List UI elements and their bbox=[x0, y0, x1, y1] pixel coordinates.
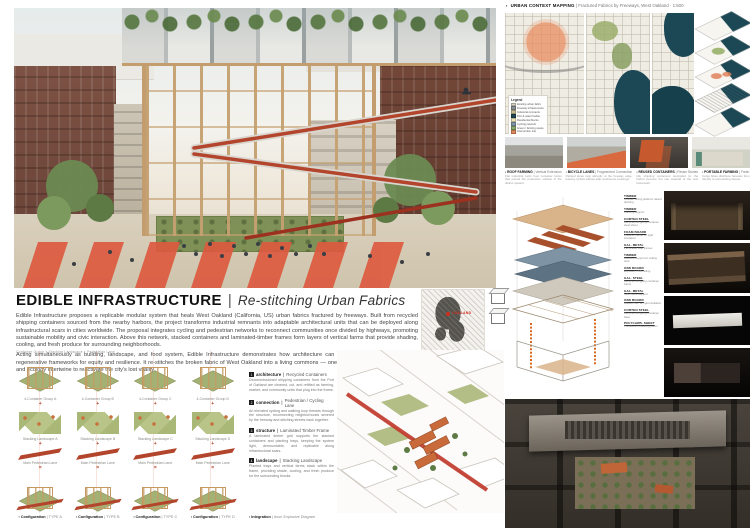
photo-bicycle-lanes bbox=[567, 137, 625, 168]
container-group-diagram bbox=[17, 356, 63, 396]
context-map-bay bbox=[652, 13, 694, 134]
configuration-labels: Configuration | TYPE A Configuration | T… bbox=[14, 515, 239, 519]
city-label: OAKLAND bbox=[452, 311, 471, 315]
site-photos-row bbox=[505, 137, 750, 168]
green-zone bbox=[592, 21, 618, 41]
system-body-text: Planted trays and vertical farms stack w… bbox=[249, 464, 334, 479]
analysis-layer bbox=[694, 59, 750, 89]
configuration-column-a: 4-Container Group A + Stacking Landscape… bbox=[14, 356, 67, 516]
photo-reused-containers bbox=[630, 137, 688, 168]
context-maps-row: Legend Existing urban fabric Freeway inf… bbox=[505, 13, 750, 134]
stacking-landscape-diagram bbox=[75, 408, 121, 436]
material-item: GAL. STEELRecycled shipping container fr… bbox=[624, 276, 662, 287]
number-badge: 3 bbox=[249, 428, 254, 433]
material-item: OSB BOARDExposed OSB ceiling bbox=[624, 266, 662, 273]
stacking-landscape-diagram bbox=[190, 408, 236, 436]
material-item: TIMBERFraming support bbox=[624, 207, 662, 214]
hero-render bbox=[14, 8, 496, 288]
equals-operator: = bbox=[39, 466, 42, 471]
water-body bbox=[664, 13, 694, 57]
photo-roof-farming bbox=[505, 137, 563, 168]
water-body bbox=[614, 70, 650, 134]
combined-configuration-diagram bbox=[190, 472, 236, 516]
configuration-column-d: 4-Container Group D + Stacking Landscape… bbox=[187, 356, 240, 516]
plus-operator: + bbox=[211, 402, 214, 407]
integration-axon-art bbox=[337, 350, 504, 513]
stacking-landscape-diagram bbox=[17, 408, 63, 436]
number-badge: 1 bbox=[249, 372, 254, 377]
configuration-type-label: Configuration | TYPE B bbox=[72, 515, 125, 519]
system-body-text: An elevated cycling and walking loop thr… bbox=[249, 409, 334, 424]
configuration-type-label: Configuration | TYPE C bbox=[129, 515, 182, 519]
model-photo bbox=[664, 348, 750, 397]
container-cube-icon bbox=[491, 312, 505, 324]
legend-row: Cycling network bbox=[511, 122, 545, 125]
brick-building-right bbox=[380, 56, 496, 236]
plus-operator: + bbox=[211, 442, 214, 447]
photo-portable-farming bbox=[692, 137, 750, 168]
equals-operator: = bbox=[211, 466, 214, 471]
roof-skylight-slot bbox=[565, 421, 690, 439]
model-photo-strip bbox=[664, 191, 750, 397]
exploded-axon-diagram bbox=[505, 191, 622, 397]
plus-operator: + bbox=[154, 442, 157, 447]
configuration-column-c: 4-Container Group C + Stacking Landscape… bbox=[129, 356, 182, 516]
number-badge: 4 bbox=[249, 458, 254, 463]
location-sketch-map: OAKLAND bbox=[421, 289, 485, 352]
legend-row: Port & water bodies bbox=[511, 114, 545, 117]
context-map-radius: Legend Existing urban fabric Freeway inf… bbox=[505, 13, 584, 134]
photo-caption: PORTABLE FARMING | Fresh Produce Deliver… bbox=[702, 170, 750, 186]
material-callouts: TIMBEROutdoor dining platform raised dec… bbox=[624, 194, 662, 396]
material-item: FOAM BOARDWeather barrier w/ rigid insul… bbox=[624, 230, 662, 241]
presentation-board: EDIBLE INFRASTRUCTURE | Re-stitching Urb… bbox=[0, 0, 750, 530]
title-separator: | bbox=[228, 292, 232, 309]
photo-caption: BICYCLE LANES | Fragmented Connection Pa… bbox=[566, 170, 633, 186]
planted-plaza bbox=[575, 457, 695, 509]
container-group-diagram bbox=[190, 356, 236, 396]
equals-operator: = bbox=[154, 466, 157, 471]
figure-ground-sketch bbox=[422, 290, 484, 351]
plus-operator: + bbox=[154, 402, 157, 407]
system-item-connection: 2connection|Pedestrian / Cycling Lane An… bbox=[249, 398, 334, 424]
system-descriptions: 1architecture|Recycled Containers Decomm… bbox=[249, 372, 334, 484]
freeway-arc bbox=[505, 43, 584, 73]
integration-axon-diagram bbox=[337, 350, 504, 513]
pedestrian-lane-diagram bbox=[75, 448, 121, 460]
legend-row: Green / farming space bbox=[511, 126, 545, 129]
material-item: GAL. METALSide frame support bbox=[624, 289, 662, 296]
layered-analysis-stack bbox=[696, 13, 750, 134]
system-body-text: Decommissioned shipping containers from … bbox=[249, 378, 334, 393]
analysis-layer bbox=[694, 11, 750, 41]
water-body bbox=[652, 86, 694, 134]
container-group-diagram bbox=[75, 356, 121, 396]
analysis-layer bbox=[694, 107, 750, 137]
context-map-landuse bbox=[586, 13, 650, 134]
container-cube-icon bbox=[491, 292, 505, 304]
model-photo bbox=[664, 191, 750, 240]
material-item: CORTEN STEELRecycled shipping container … bbox=[624, 217, 662, 228]
exploded-axon-art bbox=[505, 191, 622, 397]
configuration-type-label: Configuration | TYPE D bbox=[187, 515, 240, 519]
equals-operator: = bbox=[96, 466, 99, 471]
configuration-type-label: Configuration | TYPE A bbox=[14, 515, 67, 519]
material-item: OSB BOARDRaised floor w/ rigid insulatio… bbox=[624, 298, 662, 305]
intro-paragraph-1: Edible Infrastructure proposes a replica… bbox=[16, 313, 418, 349]
location-pin-icon bbox=[446, 312, 450, 316]
project-title: EDIBLE INFRASTRUCTURE bbox=[16, 292, 222, 309]
project-subtitle: Re-stitching Urban Fabrics bbox=[238, 293, 406, 308]
system-item-architecture: 1architecture|Recycled Containers Decomm… bbox=[249, 372, 334, 393]
system-item-structure: 3structure|Laminated Timber Frame A lami… bbox=[249, 428, 334, 453]
analysis-layer bbox=[694, 35, 750, 65]
stacking-landscape-diagram bbox=[132, 408, 178, 436]
model-photo bbox=[664, 296, 750, 345]
aerial-render bbox=[505, 399, 750, 528]
number-badge: 2 bbox=[249, 400, 254, 405]
legend-title: Legend bbox=[511, 98, 545, 102]
configuration-column-b: 4-Container Group B + Stacking Landscape… bbox=[72, 356, 125, 516]
legend-row: Freeway infrastructure bbox=[511, 106, 545, 109]
plus-operator: + bbox=[96, 442, 99, 447]
photo-caption: REUSED CONTAINERS | Reuse Stories Idle s… bbox=[636, 170, 698, 186]
photo-caption: ROOF FARMING | Vertical Extension Flat i… bbox=[505, 170, 562, 186]
legend-row: Residential blocks bbox=[511, 118, 545, 121]
material-item: TIMBERCladded support w/ ceiling stud bbox=[624, 253, 662, 264]
pedestrian-lane-diagram bbox=[17, 448, 63, 460]
configuration-diagrams: Container Group + Stacking Landscape + P… bbox=[14, 350, 239, 513]
material-item: TIMBEROutdoor dining platform raised dec… bbox=[624, 194, 662, 205]
legend-row: Existing urban fabric bbox=[511, 103, 545, 106]
pedestrian-lane-diagram bbox=[132, 448, 178, 460]
container-accent bbox=[601, 462, 628, 474]
plus-operator: + bbox=[39, 402, 42, 407]
brick-building-left bbox=[14, 66, 116, 234]
combined-configuration-diagram bbox=[75, 472, 121, 516]
container-group-diagram bbox=[132, 356, 178, 396]
analysis-layer bbox=[694, 83, 750, 113]
system-body-text: A laminated timber grid supports the sta… bbox=[249, 434, 334, 453]
green-zone bbox=[612, 43, 632, 69]
combined-configuration-diagram bbox=[17, 472, 63, 516]
photo-captions-row: ROOF FARMING | Vertical Extension Flat i… bbox=[505, 170, 750, 186]
model-photo bbox=[664, 243, 750, 292]
material-item: GAL. METALPerforated side frames bbox=[624, 243, 662, 250]
container-unit-diagrams bbox=[491, 292, 506, 352]
configuration-note: Container Group + Stacking Landscape + P… bbox=[16, 350, 239, 354]
plus-operator: + bbox=[96, 402, 99, 407]
combined-configuration-diagram bbox=[132, 472, 178, 516]
material-item: POLYCARB. SHEETTranslucent cladding pane… bbox=[624, 321, 662, 328]
map-legend: Legend Existing urban fabric Freeway inf… bbox=[508, 95, 548, 134]
legend-row: Industrial remnants bbox=[511, 110, 545, 113]
integration-label: Integration | Axon Explosive Diagram bbox=[249, 515, 315, 519]
pedestrian-lane-diagram bbox=[190, 448, 236, 460]
system-item-landscape: 4landscape|Stacking Landscape Planted tr… bbox=[249, 458, 334, 479]
context-mapping-header: URBAN CONTEXT MAPPING | Fractured Fabric… bbox=[506, 3, 748, 8]
legend-row: Intervention site bbox=[511, 130, 545, 133]
material-item: CORTEN STEELRecycled shipping container … bbox=[624, 308, 662, 319]
plus-operator: + bbox=[39, 442, 42, 447]
rooftop-vegetation bbox=[122, 8, 496, 34]
